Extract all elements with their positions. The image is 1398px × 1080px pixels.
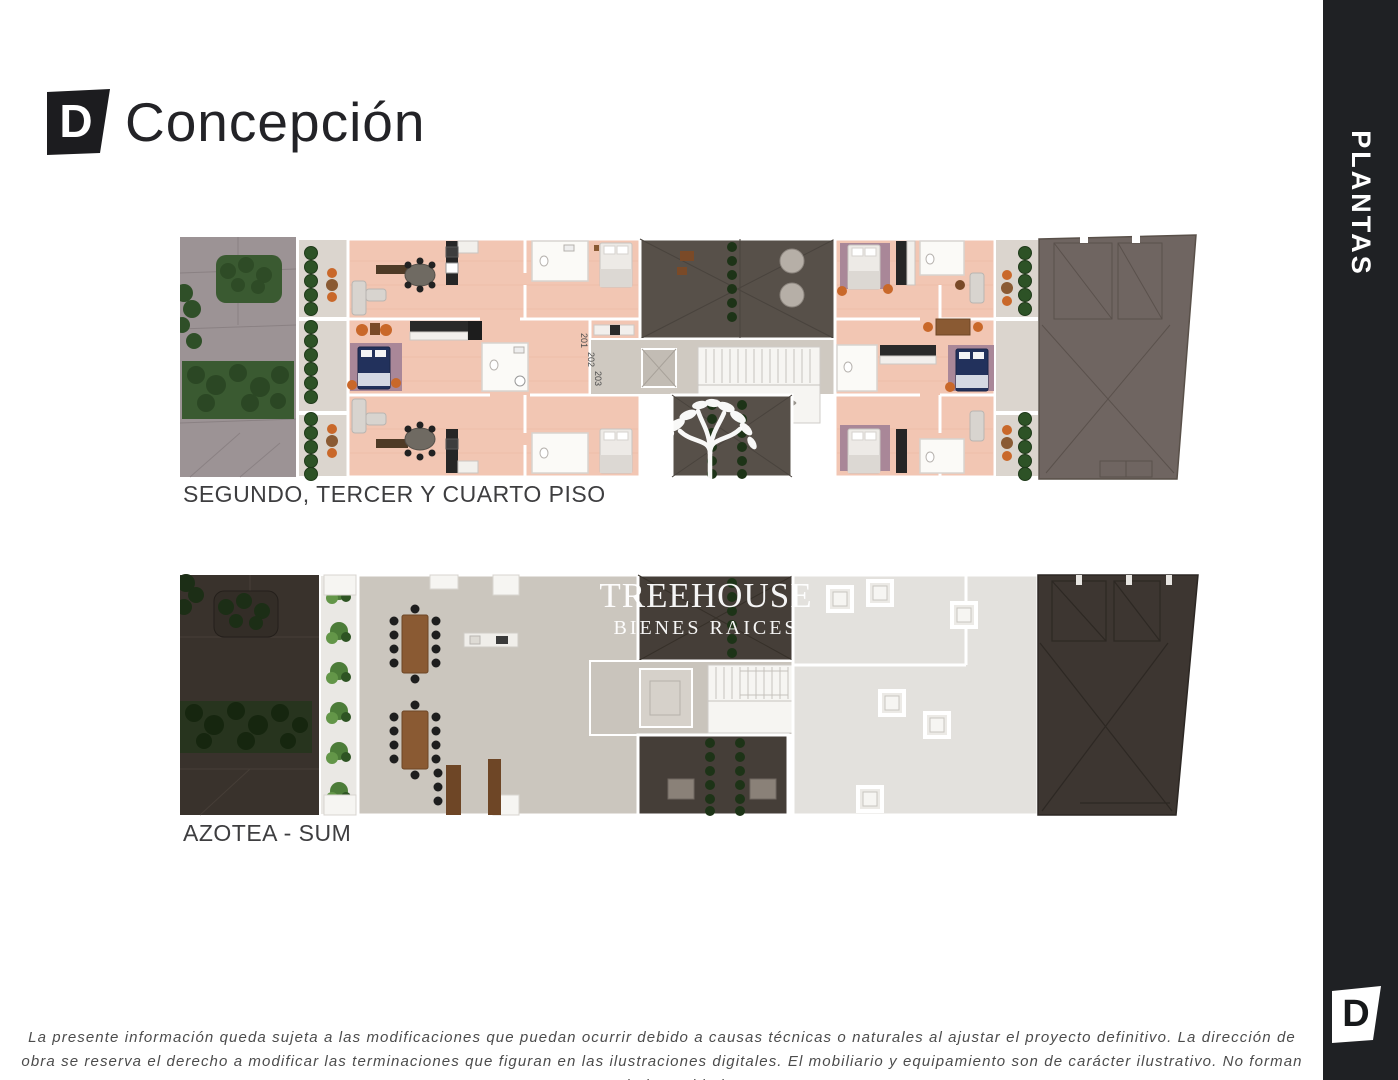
logo-d-letter: D xyxy=(47,89,105,153)
disclaimer-line-3: parte de las unidades. xyxy=(8,1074,1316,1080)
logo-d-mark: D xyxy=(47,89,111,155)
sidebar-label-box: PLANTAS xyxy=(1323,78,1398,328)
project-name: Concepción xyxy=(125,90,425,154)
disclaimer-line-1: La presente información queda sujeta a l… xyxy=(8,1026,1316,1050)
legal-disclaimer: La presente información queda sujeta a l… xyxy=(8,1026,1316,1080)
watermark-subtitle: BIENES RAICES xyxy=(586,617,826,640)
treehouse-watermark: TREEHOUSE BIENES RAICES xyxy=(586,578,826,640)
footer-d-letter: D xyxy=(1334,988,1378,1040)
section-label: PLANTAS xyxy=(1345,130,1376,277)
disclaimer-line-2: obra se reserva el derecho a modificar l… xyxy=(8,1050,1316,1074)
side-band: PLANTAS D xyxy=(1323,0,1398,1080)
treehouse-tree-logo-watermark xyxy=(640,395,780,491)
plan2-garden-dark xyxy=(180,574,320,815)
watermark-title: TREEHOUSE xyxy=(586,578,826,615)
unit-number-202: 202 xyxy=(586,352,596,367)
plan2-rooftop xyxy=(793,575,1038,815)
plan2-plant-strip xyxy=(320,575,358,815)
plan1-balcony-right xyxy=(995,239,1039,481)
brochure-page: D Concepción xyxy=(0,0,1398,1080)
plan2-neighbor-roof xyxy=(1038,575,1198,815)
plan1-apartments-right xyxy=(835,239,996,477)
plan1-balcony-left xyxy=(298,239,348,481)
unit-number-201: 201 xyxy=(579,333,589,348)
plan1-neighbor-roof xyxy=(1039,235,1196,479)
plan2-title: AZOTEA - SUM xyxy=(183,820,351,847)
footer-d-mark: D xyxy=(1332,986,1382,1044)
project-logo: D Concepción xyxy=(47,88,425,156)
plan1-title: SEGUNDO, TERCER Y CUARTO PISO xyxy=(183,481,606,508)
plan1-garden xyxy=(180,237,296,477)
unit-number-203: 203 xyxy=(593,371,603,386)
